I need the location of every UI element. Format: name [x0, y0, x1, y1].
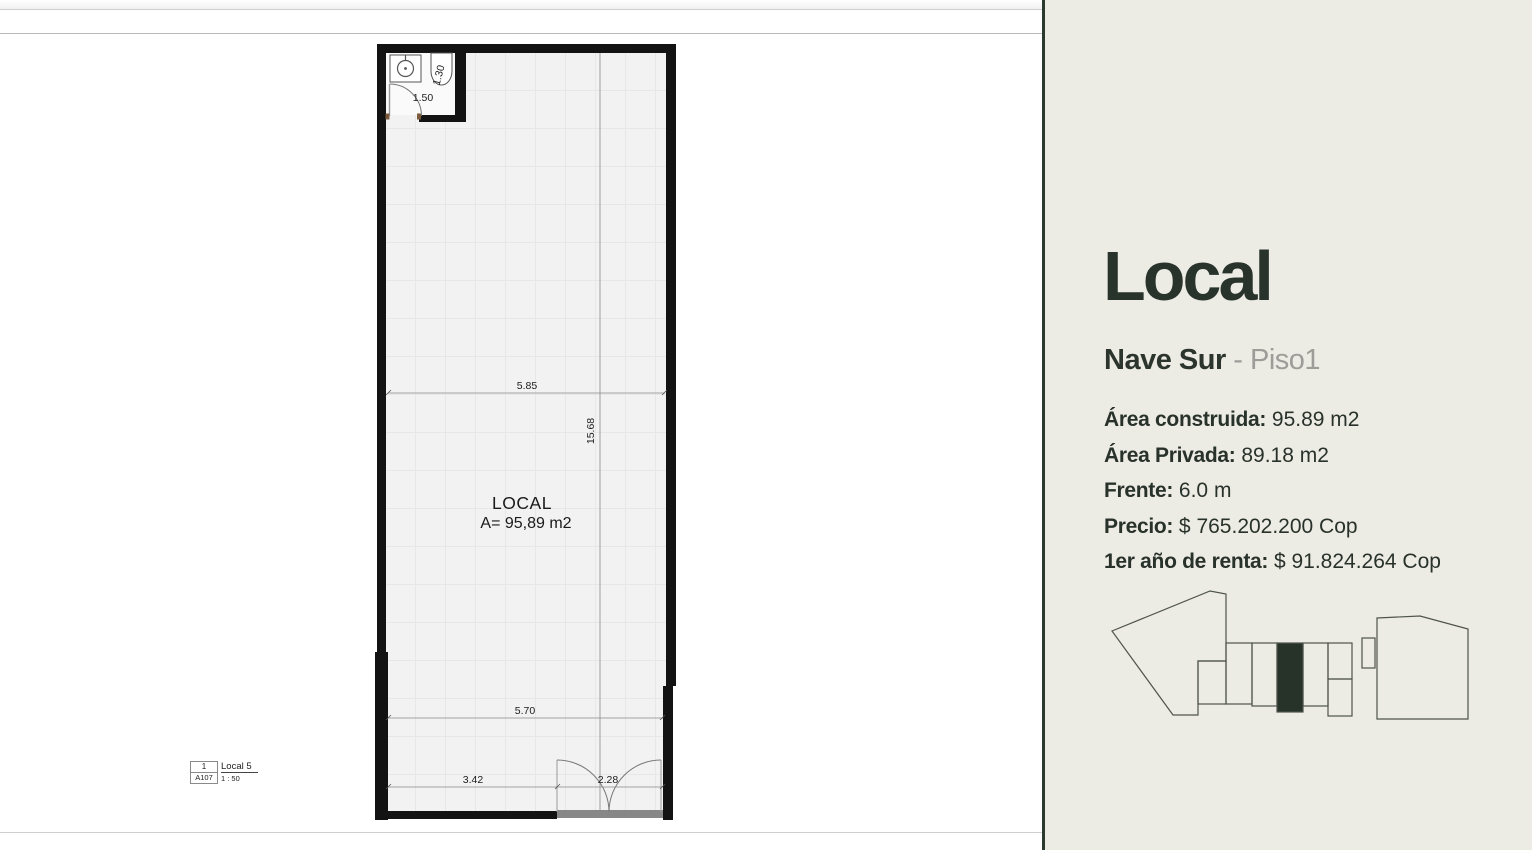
bathroom-wall-bottom [419, 115, 466, 122]
detail-value: $ 91.824.264 Cop [1268, 550, 1441, 573]
detail-row-area-privada: Área Privada: 89.18 m2 [1104, 438, 1441, 474]
detail-row-renta: 1er año de renta: $ 91.824.264 Cop [1104, 544, 1441, 580]
wall-left-upper [377, 53, 386, 652]
wall-left-lower [375, 652, 388, 820]
minimap-building-west [1112, 591, 1226, 715]
detail-label: Frente: [1104, 479, 1173, 502]
minimap-unit [1252, 643, 1277, 706]
property-details: Área construida: 95.89 m2 Área Privada: … [1104, 402, 1441, 580]
detail-label: 1er año de renta: [1104, 550, 1268, 573]
subtitle-building: Nave Sur [1104, 344, 1233, 376]
entrance-threshold [557, 810, 663, 818]
sink-icon [390, 55, 421, 82]
dim-front-door: 2.28 [598, 774, 619, 786]
dim-bath-door: 1.50 [413, 92, 434, 104]
detail-label: Área construida: [1104, 408, 1266, 431]
view-number-box: 1 A107 [190, 761, 218, 784]
room-area-label: A= 95,89 m2 [480, 515, 571, 532]
dim-width-top: 5.85 [517, 380, 538, 392]
detail-value: $ 765.202.200 Cop [1173, 515, 1358, 538]
detail-label: Área Privada: [1104, 444, 1236, 467]
location-minimap[interactable] [1105, 586, 1485, 736]
minimap-unit [1226, 643, 1252, 704]
panel-title: Local [1103, 236, 1271, 316]
detail-value: 89.18 m2 [1236, 444, 1329, 467]
minimap-building-east [1377, 616, 1468, 719]
wall-top [377, 44, 676, 53]
view-name: Local 5 [221, 761, 258, 773]
wall-right-upper [666, 53, 676, 686]
detail-row-area-construida: Área construida: 95.89 m2 [1104, 402, 1441, 438]
detail-value: 95.89 m2 [1266, 408, 1359, 431]
door-hinge [386, 114, 390, 120]
minimap-unit [1198, 661, 1226, 704]
sheet-title-block: 1 A107 Local 5 1 : 50 [190, 761, 258, 784]
detail-row-frente: Frente: 6.0 m [1104, 473, 1441, 509]
page: 1.50 1.30 5.85 15.6 [0, 0, 1532, 850]
view-number: 1 [191, 762, 217, 773]
minimap-unit [1303, 643, 1328, 706]
floor-plan: 1.50 1.30 5.85 15.6 [0, 0, 1044, 850]
subtitle-floor: - Piso1 [1233, 344, 1320, 376]
door-hinge [417, 114, 421, 120]
detail-label: Precio: [1104, 515, 1173, 538]
wall-bottom [385, 811, 557, 819]
minimap-unit [1362, 638, 1375, 668]
room-floor [386, 53, 666, 811]
detail-value: 6.0 m [1173, 479, 1231, 502]
detail-row-precio: Precio: $ 765.202.200 Cop [1104, 509, 1441, 545]
minimap-highlighted-unit[interactable] [1277, 643, 1303, 712]
view-scale: 1 : 50 [221, 773, 258, 784]
panel-subtitle: Nave Sur - Piso1 [1104, 344, 1320, 377]
minimap-unit [1328, 643, 1352, 679]
dim-height-side: 15.68 [585, 418, 597, 444]
dim-width-mid: 5.70 [515, 705, 536, 717]
bathroom-wall-right [455, 44, 466, 122]
dim-front-left: 3.42 [463, 774, 484, 786]
minimap-unit [1328, 679, 1352, 716]
info-panel: Local Nave Sur - Piso1 Área construida: … [1042, 0, 1532, 850]
floor-plan-viewport[interactable]: 1.50 1.30 5.85 15.6 [0, 0, 1044, 850]
wall-right-lower [663, 686, 673, 820]
room-label: LOCAL [492, 493, 552, 513]
sheet-number: A107 [191, 773, 217, 783]
